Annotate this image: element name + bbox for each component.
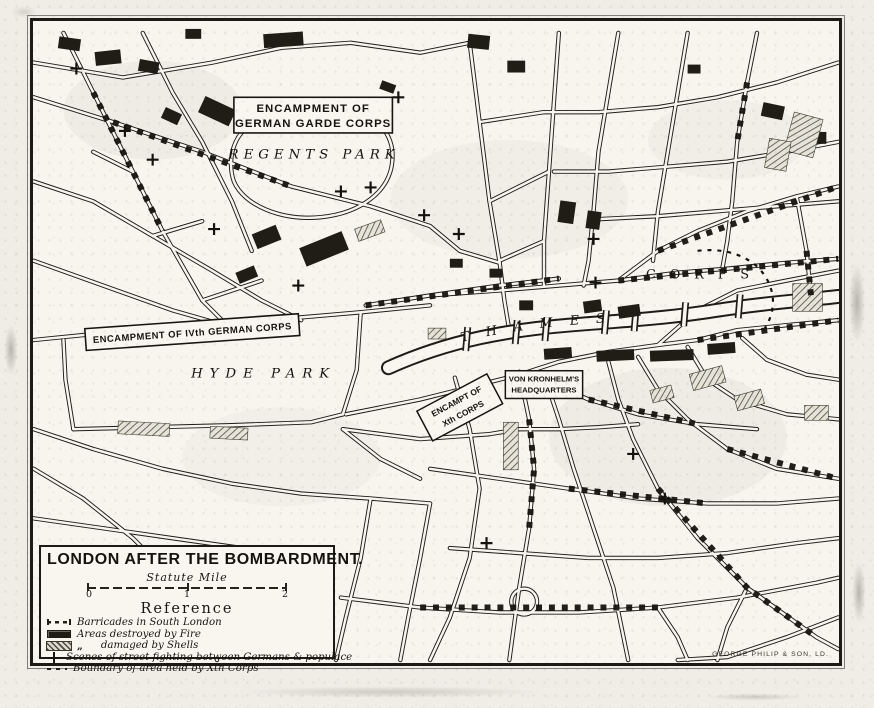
solid-black-swatch-icon xyxy=(47,630,71,638)
legend-label: Barricades in South London xyxy=(77,617,222,628)
x-corps-area-letters: CORPS xyxy=(646,268,763,283)
legend-row-boundary: Boundary of area held by Xth Corps xyxy=(47,663,327,675)
scale-tick-0: 0 xyxy=(86,589,92,600)
scan-smudge xyxy=(850,550,868,635)
legend-label: Scenes of street fighting between German… xyxy=(66,652,352,663)
ditto-mark: „ xyxy=(77,640,83,652)
publisher-credit: GEORGE PHILIP & SON, LD. xyxy=(712,651,829,658)
map-title: LONDON AFTER THE BOMBARDMENT. xyxy=(47,551,327,569)
legend-row-fire: Areas destroyed by Fire xyxy=(47,629,327,641)
scale-tick-2: 2 xyxy=(282,589,288,600)
legend-row-shells: „ damaged by Shells xyxy=(47,640,327,652)
reference-heading: Reference xyxy=(47,601,327,617)
map-border-frame: ENCAMPMENT OF GERMAN GARDE CORPS REGENTS… xyxy=(30,18,842,666)
scan-smudge xyxy=(180,684,600,700)
legend-label: Areas destroyed by Fire xyxy=(77,629,201,640)
barricade-dashes-icon xyxy=(47,619,71,626)
legend-row-barricades: Barricades in South London xyxy=(47,617,327,629)
legend-label: damaged by Shells xyxy=(101,640,198,651)
regents-park-label: REGENTS PARK xyxy=(228,148,400,163)
scan-smudge xyxy=(690,692,820,702)
scan-smudge xyxy=(2,315,20,385)
scale-bar: Statute Mile 0 1 2 xyxy=(87,571,287,600)
svg-text:ENCAMPMENT OF: ENCAMPMENT OF xyxy=(256,103,369,115)
svg-text:GERMAN GARDE CORPS: GERMAN GARDE CORPS xyxy=(235,118,391,130)
legend-row-fighting: Scenes of street fighting between German… xyxy=(47,652,327,664)
legend-panel: LONDON AFTER THE BOMBARDMENT. Statute Mi… xyxy=(39,545,335,659)
hatched-swatch-icon xyxy=(47,642,71,650)
x-corps-encampment-label: ENCAMPT OF Xth CORPS xyxy=(417,374,503,441)
iv-corps-encampment-label: ENCAMPMENT OF IVth GERMAN CORPS xyxy=(85,314,300,351)
garde-corps-encampment-label: ENCAMPMENT OF GERMAN GARDE CORPS xyxy=(234,97,393,133)
scale-tick-1: 1 xyxy=(184,589,190,600)
svg-text:VON KRONHELM'S: VON KRONHELM'S xyxy=(509,375,579,384)
scan-smudge xyxy=(846,248,868,358)
von-kronhelm-headquarters-label: VON KRONHELM'S HEADQUARTERS xyxy=(505,371,582,399)
legend-label: Boundary of area held by Xth Corps xyxy=(73,663,258,674)
svg-text:HEADQUARTERS: HEADQUARTERS xyxy=(511,386,576,395)
dashed-line-icon xyxy=(47,668,67,670)
hyde-park-label: HYDE PARK xyxy=(190,367,336,382)
cross-icon xyxy=(47,652,60,663)
scale-tick-labels: 0 1 2 xyxy=(87,589,287,600)
scanned-page: { "map": { "title": "LONDON AFTER THE BO… xyxy=(0,0,874,708)
